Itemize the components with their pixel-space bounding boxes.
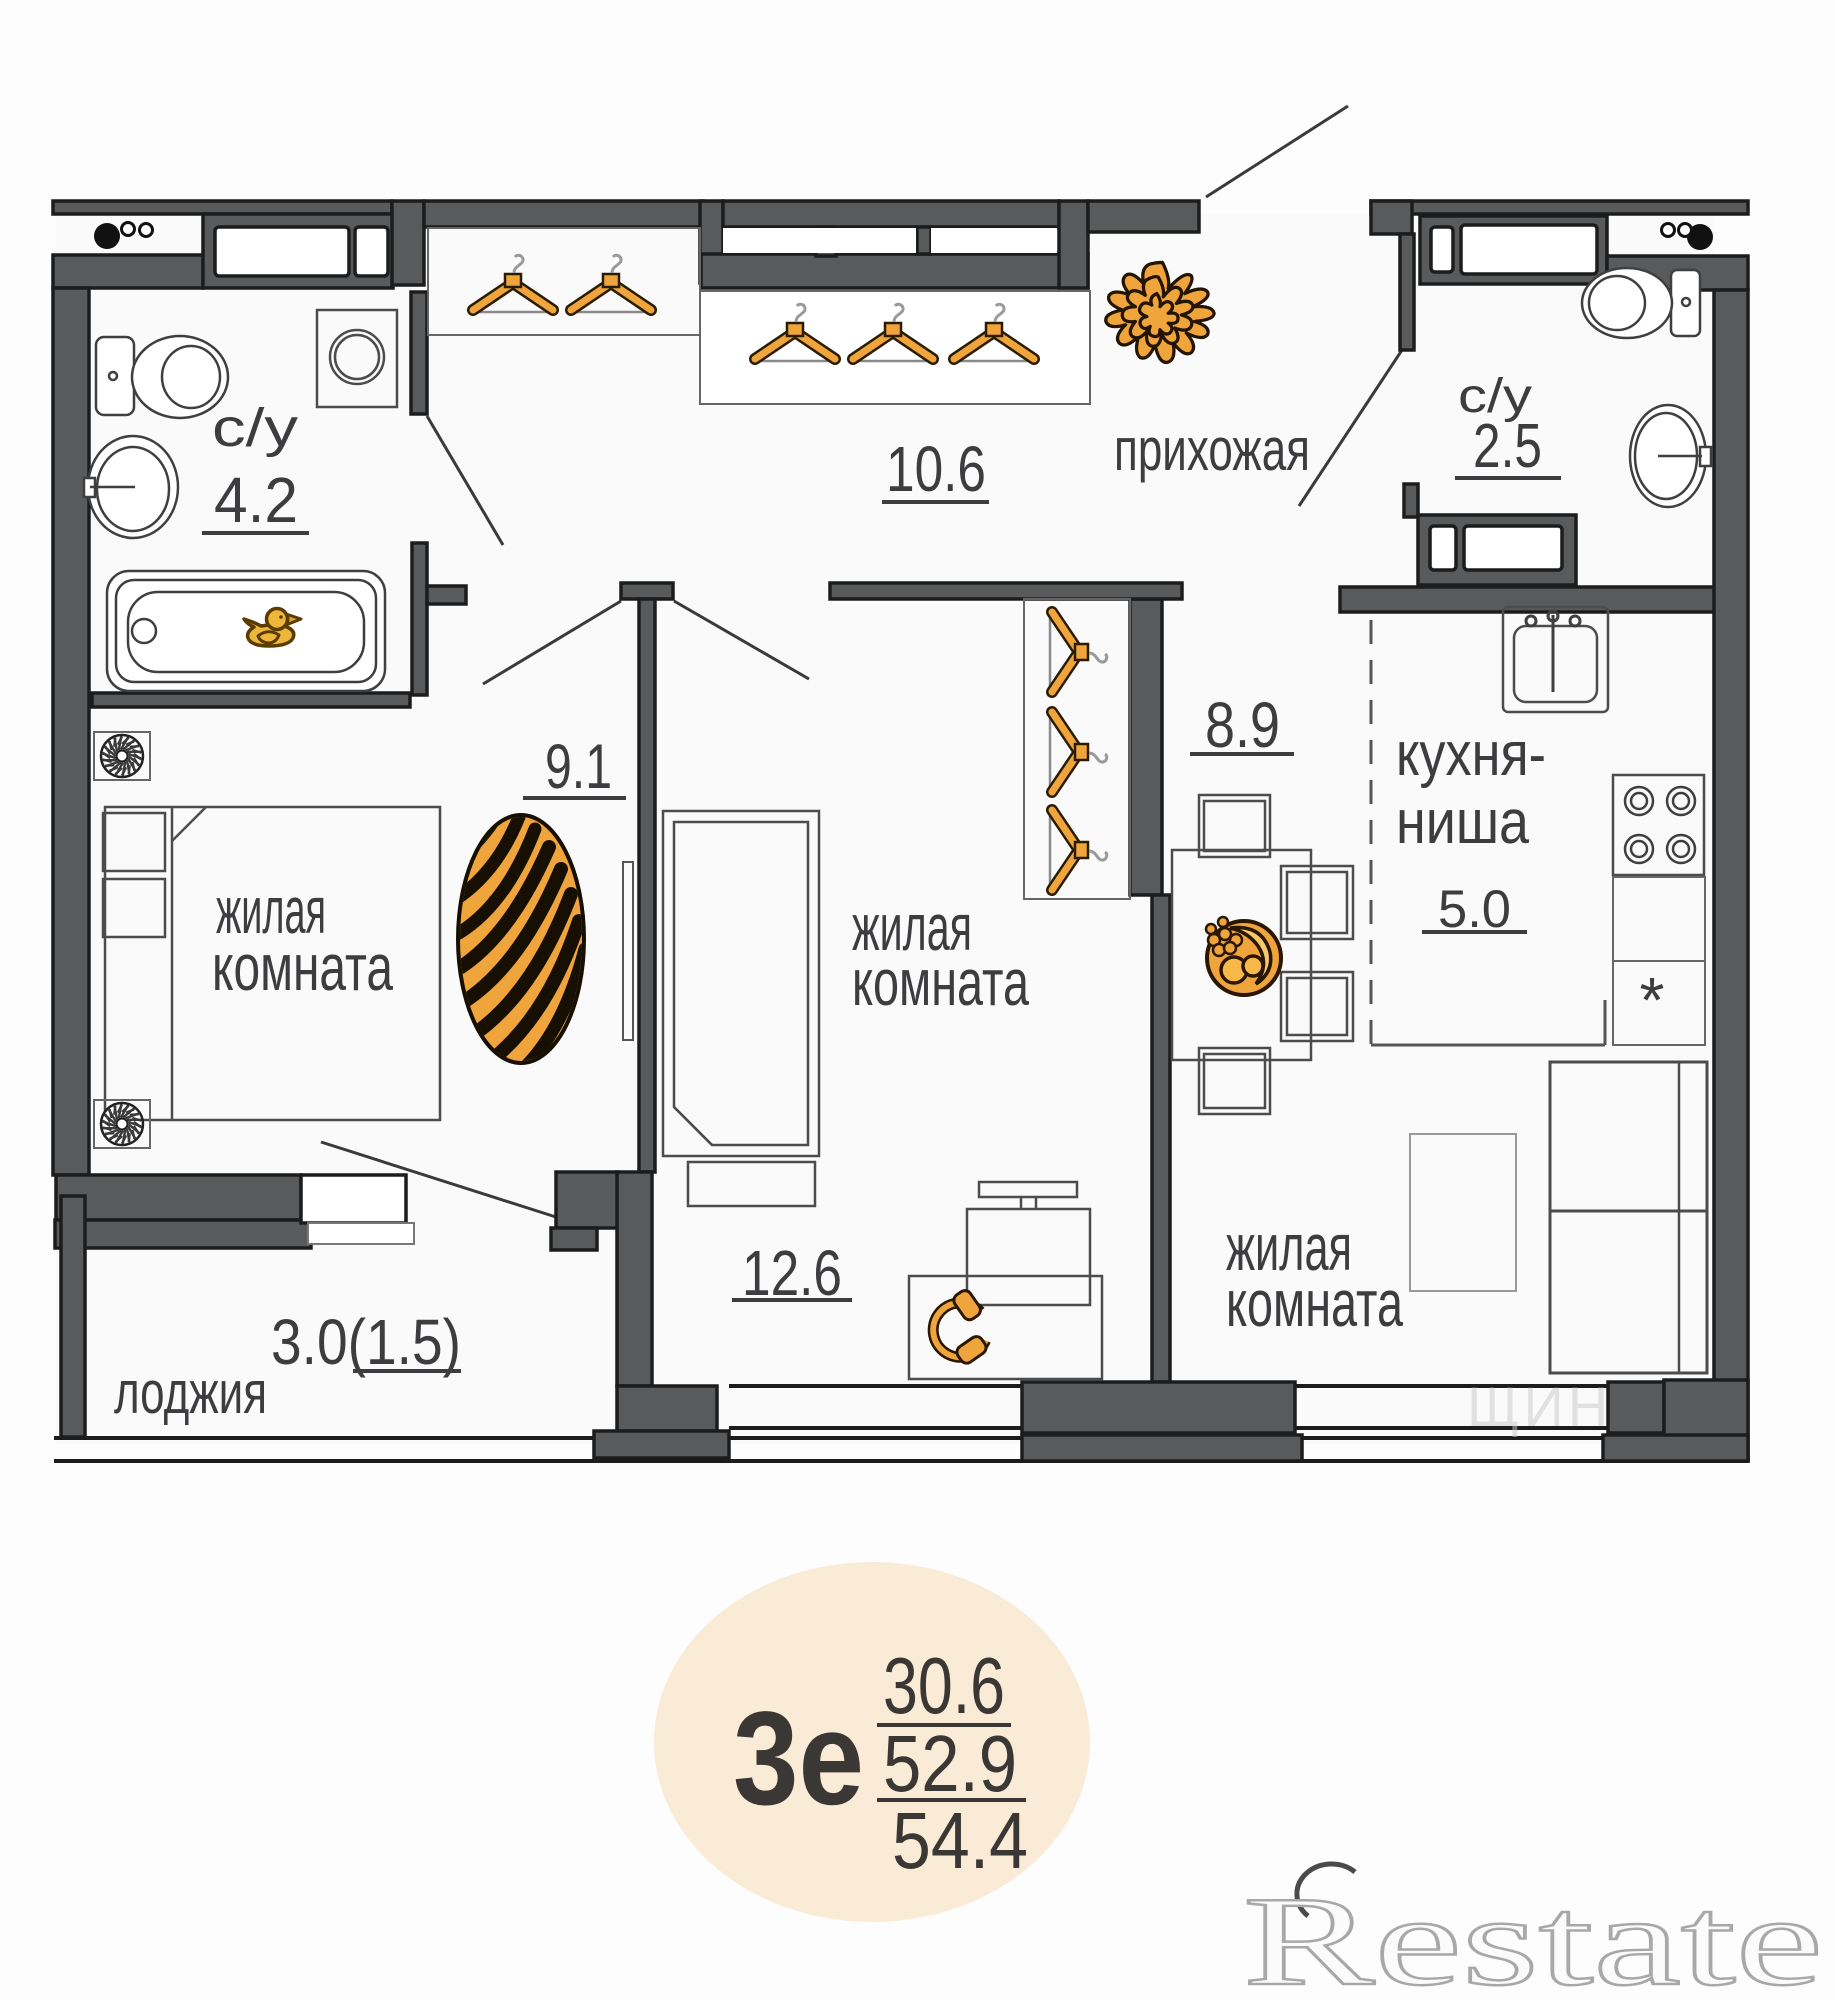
svg-text:Restate: Restate	[1243, 1870, 1823, 2000]
svg-text:30.6: 30.6	[883, 1641, 1005, 1730]
svg-text:комната: комната	[212, 930, 393, 1004]
svg-text:54.4: 54.4	[892, 1796, 1028, 1885]
svg-text:2.5: 2.5	[1473, 412, 1542, 481]
svg-text:9.1: 9.1	[545, 732, 612, 802]
svg-text:8.9: 8.9	[1205, 689, 1280, 761]
svg-text:*: *	[1640, 964, 1665, 1036]
svg-text:кухня-: кухня-	[1396, 720, 1546, 789]
svg-text:комната: комната	[1226, 1266, 1403, 1340]
svg-text:комната: комната	[852, 945, 1029, 1019]
svg-text:52.9: 52.9	[883, 1719, 1017, 1808]
svg-text:с/у: с/у	[212, 398, 298, 458]
svg-text:3е: 3е	[733, 1685, 864, 1833]
svg-text:10.6: 10.6	[886, 433, 986, 505]
svg-text:4.2: 4.2	[214, 464, 298, 536]
svg-text:3.0(1.5): 3.0(1.5)	[271, 1306, 461, 1378]
svg-text:прихожая: прихожая	[1114, 416, 1310, 483]
svg-text:ниша: ниша	[1396, 788, 1529, 857]
svg-text:лоджия: лоджия	[114, 1359, 267, 1426]
